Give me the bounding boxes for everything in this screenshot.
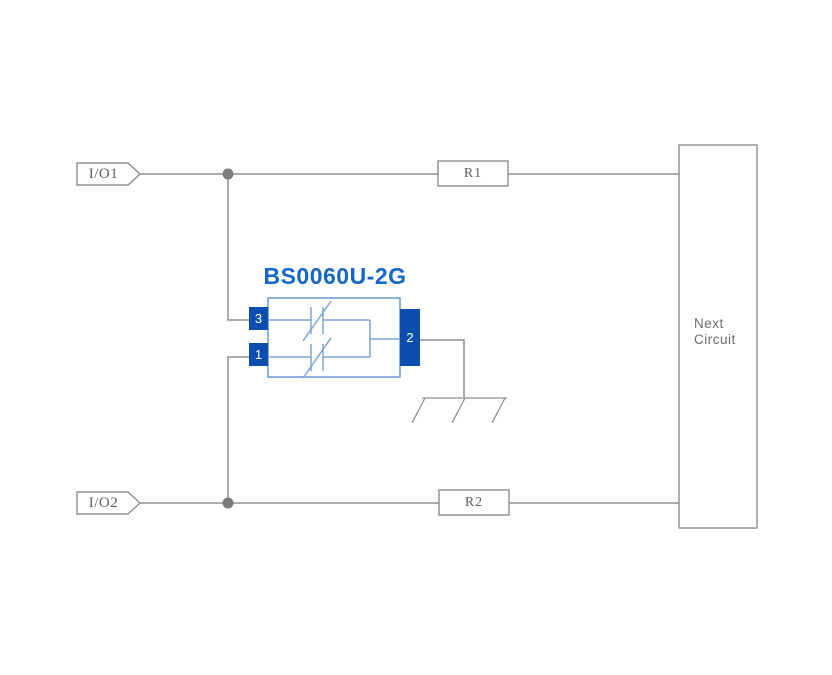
junction-dot	[223, 498, 234, 509]
chassis-ground-icon	[412, 398, 507, 423]
wire-io2-to-pin1	[228, 357, 250, 503]
component-body-box	[268, 298, 400, 377]
r2-label: R2	[439, 490, 509, 515]
wire-io1-to-pin3	[228, 174, 250, 320]
io2-label: I/O2	[77, 492, 130, 514]
next-circuit-label: Next Circuit	[679, 316, 757, 348]
wire-pin2-to-ground	[420, 340, 464, 397]
component-title: BS0060U-2G	[240, 262, 430, 290]
next-circuit-line2: Circuit	[694, 332, 757, 348]
next-circuit-line1: Next	[694, 316, 757, 332]
io1-label: I/O1	[77, 163, 130, 185]
r1-label: R1	[438, 161, 508, 186]
pin3-label: 3	[249, 307, 268, 330]
pin2-label: 2	[400, 309, 420, 366]
junction-dot	[223, 169, 234, 180]
pin1-label: 1	[249, 343, 268, 366]
circuit-diagram: I/O1 I/O2 R1 R2 Next Circuit BS0060U-2G …	[0, 0, 832, 675]
